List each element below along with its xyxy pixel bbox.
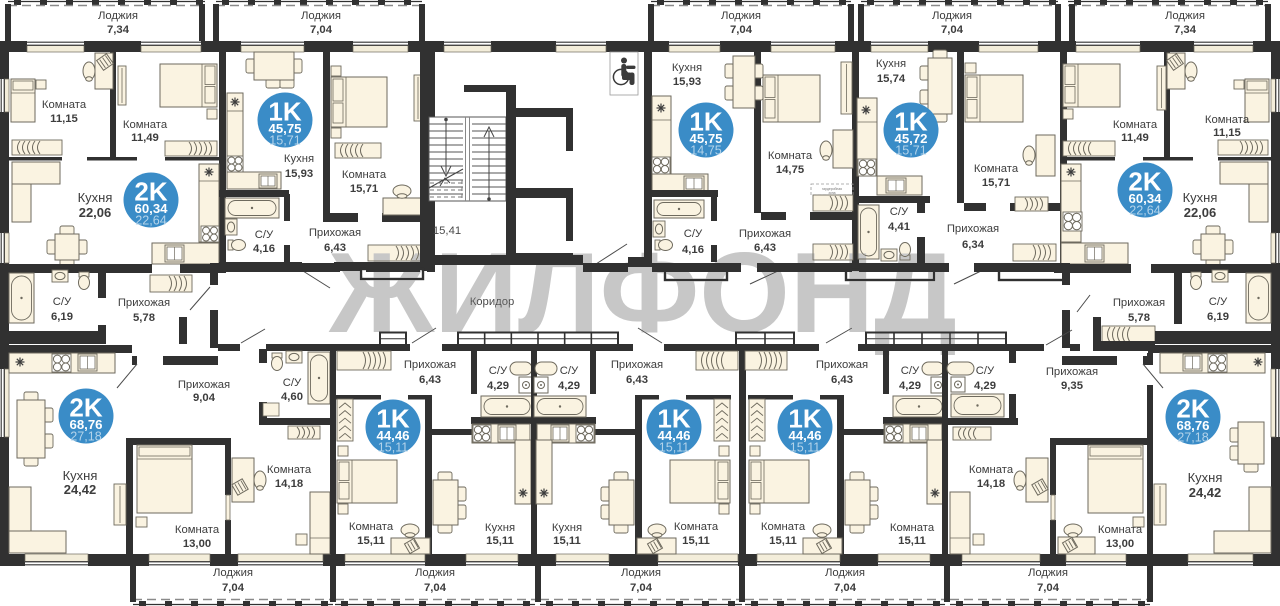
svg-text:Кухня: Кухня	[485, 522, 515, 534]
svg-text:Кухня: Кухня	[1188, 470, 1223, 485]
svg-text:4,16: 4,16	[253, 243, 275, 255]
svg-text:Комната: Комната	[1205, 114, 1250, 126]
svg-text:15,71: 15,71	[982, 177, 1010, 189]
svg-text:6,43: 6,43	[419, 374, 441, 386]
svg-text:6,19: 6,19	[51, 311, 73, 323]
svg-text:С/У: С/У	[283, 377, 302, 389]
svg-text:Прихожая: Прихожая	[1113, 297, 1165, 309]
svg-text:15,11: 15,11	[378, 441, 409, 455]
svg-text:5,78: 5,78	[133, 312, 155, 324]
svg-text:зона: зона	[828, 191, 835, 195]
svg-text:Комната: Комната	[42, 99, 87, 111]
svg-text:15,93: 15,93	[285, 168, 313, 180]
svg-text:Комната: Комната	[974, 163, 1019, 175]
svg-text:6,43: 6,43	[831, 374, 853, 386]
svg-text:15,11: 15,11	[659, 441, 690, 455]
svg-text:7,04: 7,04	[730, 24, 753, 36]
svg-text:С/У: С/У	[255, 229, 274, 241]
svg-text:С/У: С/У	[976, 365, 995, 377]
svg-text:Кухня: Кухня	[876, 58, 906, 70]
svg-text:7,04: 7,04	[834, 582, 857, 594]
svg-text:Прихожая: Прихожая	[816, 359, 868, 371]
svg-text:4,29: 4,29	[558, 380, 580, 392]
svg-text:22,64: 22,64	[1129, 204, 1161, 218]
svg-text:11,15: 11,15	[1213, 127, 1241, 139]
svg-text:Комната: Комната	[1113, 119, 1158, 131]
svg-text:С/У: С/У	[53, 296, 72, 308]
svg-text:14,75: 14,75	[776, 164, 804, 176]
svg-text:Прихожая: Прихожая	[118, 297, 170, 309]
svg-text:27,18: 27,18	[70, 430, 102, 444]
svg-text:15,11: 15,11	[357, 535, 385, 547]
svg-text:11,15: 11,15	[50, 113, 78, 125]
svg-text:Прихожая: Прихожая	[611, 359, 663, 371]
svg-text:Прихожая: Прихожая	[1046, 366, 1098, 378]
svg-text:15,71: 15,71	[269, 134, 301, 148]
svg-text:Комната: Комната	[890, 522, 935, 534]
svg-text:27,18: 27,18	[1177, 431, 1209, 445]
svg-text:Кухня: Кухня	[552, 522, 582, 534]
svg-text:6,34: 6,34	[962, 239, 985, 251]
svg-text:14,75: 14,75	[690, 144, 722, 158]
svg-text:14,18: 14,18	[275, 478, 303, 490]
svg-text:6,19: 6,19	[1207, 311, 1229, 323]
svg-text:Комната: Комната	[768, 150, 813, 162]
svg-text:Кухня: Кухня	[1183, 190, 1218, 205]
svg-text:14,18: 14,18	[977, 478, 1005, 490]
svg-text:С/У: С/У	[1209, 296, 1228, 308]
svg-text:Лоджия: Лоджия	[301, 10, 341, 22]
svg-text:Лоджия: Лоджия	[1165, 10, 1205, 22]
svg-text:Комната: Комната	[349, 521, 394, 533]
svg-text:6,43: 6,43	[626, 374, 648, 386]
svg-text:Комната: Комната	[969, 464, 1014, 476]
svg-text:7,04: 7,04	[424, 582, 447, 594]
svg-text:ЖИЛФОНД: ЖИЛФОНД	[328, 230, 957, 357]
svg-text:7,04: 7,04	[941, 24, 964, 36]
svg-text:15,71: 15,71	[350, 183, 378, 195]
svg-text:Кухня: Кухня	[284, 153, 314, 165]
svg-text:9,35: 9,35	[1061, 380, 1083, 392]
svg-text:Комната: Комната	[175, 524, 220, 536]
svg-text:22,06: 22,06	[79, 205, 112, 220]
svg-text:4,60: 4,60	[281, 391, 303, 403]
svg-text:Прихожая: Прихожая	[404, 359, 456, 371]
svg-text:7,04: 7,04	[1037, 582, 1060, 594]
svg-text:Кухня: Кухня	[63, 468, 98, 483]
svg-text:Лоджия: Лоджия	[932, 10, 972, 22]
svg-text:15,11: 15,11	[790, 441, 821, 455]
svg-text:24,42: 24,42	[64, 482, 97, 497]
svg-text:7,34: 7,34	[107, 24, 130, 36]
svg-text:С/У: С/У	[901, 365, 920, 377]
svg-text:С/У: С/У	[560, 365, 579, 377]
svg-text:Комната: Комната	[1098, 524, 1143, 536]
svg-text:С/У: С/У	[489, 365, 508, 377]
svg-text:Лоджия: Лоджия	[213, 567, 253, 579]
svg-text:Лоджия: Лоджия	[721, 10, 761, 22]
svg-text:Комната: Комната	[342, 169, 387, 181]
svg-text:4,29: 4,29	[487, 380, 509, 392]
svg-text:22,06: 22,06	[1184, 205, 1217, 220]
svg-text:Лоджия: Лоджия	[621, 567, 661, 579]
svg-text:11,49: 11,49	[131, 132, 159, 144]
svg-text:15,11: 15,11	[553, 535, 581, 547]
svg-text:22,64: 22,64	[135, 214, 167, 228]
svg-text:7,34: 7,34	[1174, 24, 1197, 36]
svg-text:9,04: 9,04	[193, 392, 216, 404]
svg-text:15,11: 15,11	[486, 535, 514, 547]
svg-text:7,04: 7,04	[310, 24, 333, 36]
svg-text:15,71: 15,71	[895, 144, 927, 158]
svg-text:5,78: 5,78	[1128, 312, 1150, 324]
svg-text:24,42: 24,42	[1189, 485, 1222, 500]
svg-text:С/У: С/У	[890, 206, 909, 218]
svg-text:11,49: 11,49	[1121, 132, 1149, 144]
svg-text:Кухня: Кухня	[78, 190, 113, 205]
svg-text:15,74: 15,74	[877, 73, 906, 85]
svg-text:Лоджия: Лоджия	[1028, 567, 1068, 579]
svg-text:4,29: 4,29	[974, 380, 996, 392]
svg-text:15,11: 15,11	[769, 535, 797, 547]
svg-text:Лоджия: Лоджия	[98, 10, 138, 22]
svg-text:4,29: 4,29	[899, 380, 921, 392]
svg-text:Комната: Комната	[674, 521, 719, 533]
svg-text:Кухня: Кухня	[672, 62, 702, 74]
svg-text:Комната: Комната	[267, 464, 312, 476]
svg-text:Комната: Комната	[123, 119, 168, 131]
svg-text:15,11: 15,11	[682, 535, 710, 547]
svg-text:Лоджия: Лоджия	[415, 567, 455, 579]
svg-text:Лоджия: Лоджия	[825, 567, 865, 579]
svg-text:15,93: 15,93	[673, 76, 701, 88]
svg-text:7,04: 7,04	[222, 582, 245, 594]
svg-text:Прихожая: Прихожая	[178, 379, 230, 391]
svg-text:13,00: 13,00	[1106, 538, 1134, 550]
svg-text:15,11: 15,11	[898, 535, 926, 547]
svg-text:7,04: 7,04	[630, 582, 653, 594]
svg-text:Комната: Комната	[761, 521, 806, 533]
svg-text:13,00: 13,00	[183, 538, 211, 550]
